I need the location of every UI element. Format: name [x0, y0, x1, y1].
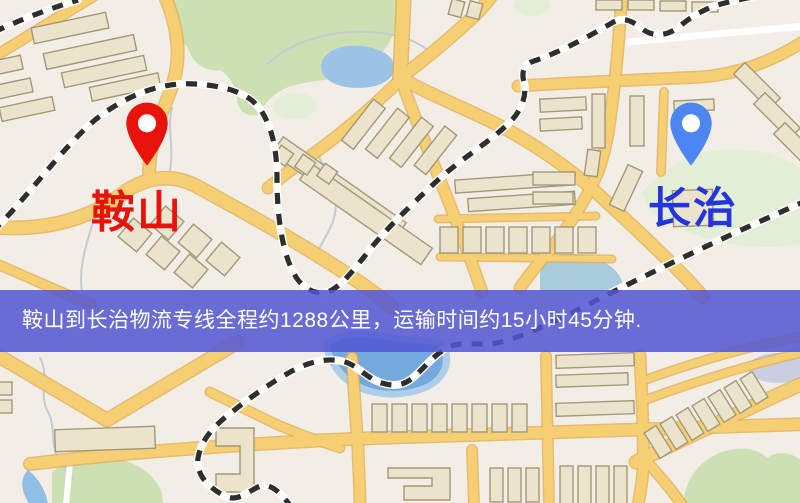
map-canvas[interactable]: [0, 0, 800, 503]
origin-pin-icon[interactable]: [121, 100, 173, 169]
origin-pin-hole: [138, 114, 156, 132]
destination-label: 长治: [598, 174, 788, 236]
route-info-banner: 鞍山到长治物流专线全程约1288公里，运输时间约15小时45分钟.: [0, 290, 800, 352]
origin-pin-shape: [126, 103, 167, 166]
origin-label: 鞍山: [42, 176, 232, 240]
route-info-text: 鞍山到长治物流专线全程约1288公里，运输时间约15小时45分钟.: [0, 290, 800, 352]
map-screenshot: 鞍山 长治 鞍山到长治物流专线全程约1288公里，运输时间约15小时45分钟.: [0, 0, 800, 503]
destination-pin-icon[interactable]: [665, 100, 717, 169]
destination-pin-shape: [670, 103, 711, 166]
destination-pin-hole: [682, 114, 700, 132]
